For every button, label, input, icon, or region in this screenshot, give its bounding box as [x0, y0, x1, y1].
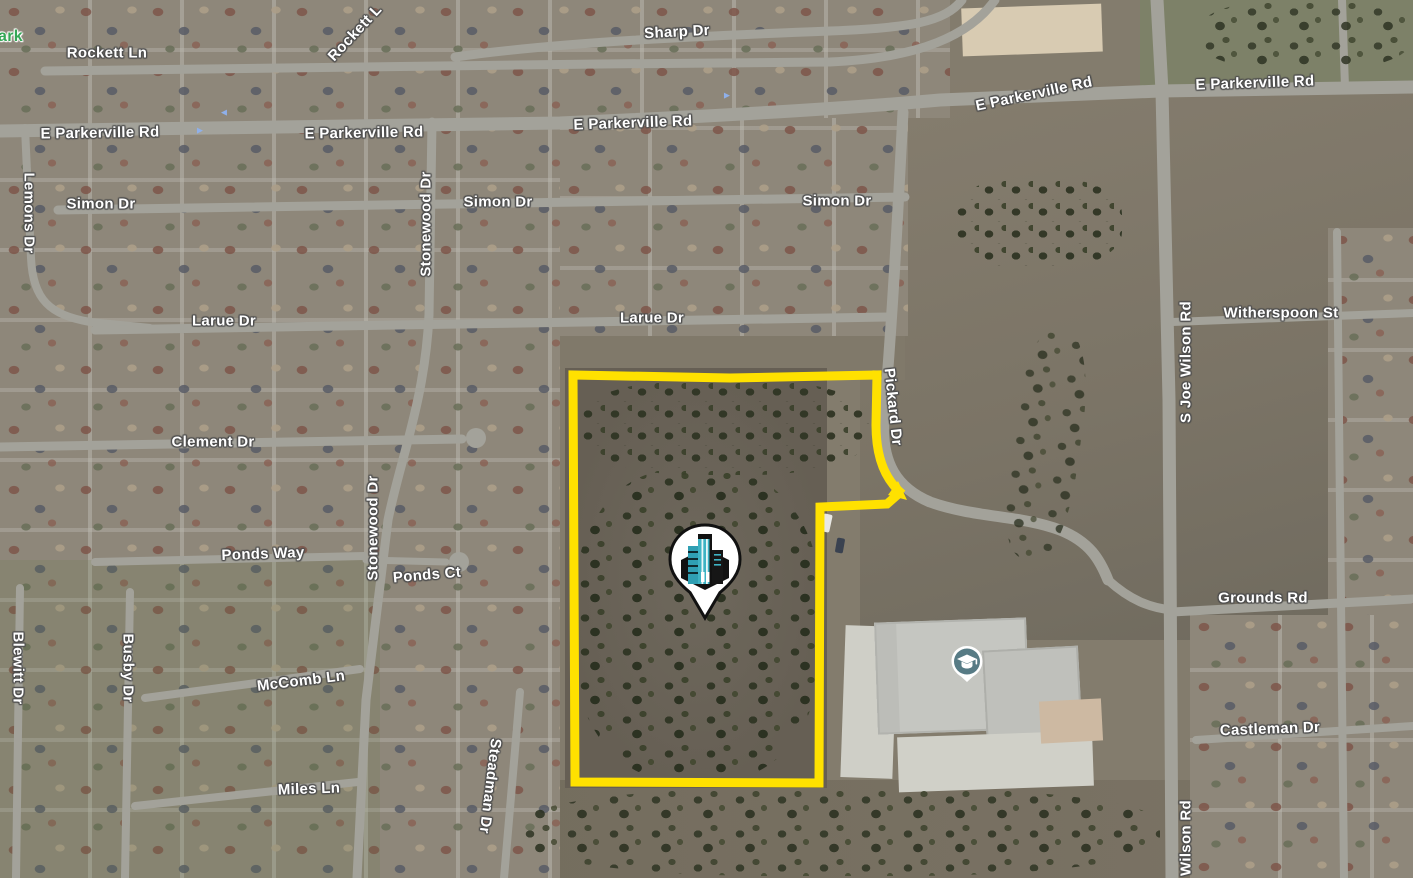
property-marker-pin[interactable] — [663, 522, 747, 622]
street-label-simon-dr-1: Simon Dr — [66, 196, 135, 213]
park-label: ark — [0, 28, 23, 46]
street-label-larue-dr-1: Larue Dr — [192, 313, 256, 330]
street-label-simon-dr-2: Simon Dr — [463, 194, 532, 211]
street-label-s-joe-wilson-rd: S Joe Wilson Rd — [1178, 301, 1195, 423]
street-label-witherspoon-st: Witherspoon St — [1224, 305, 1339, 322]
satellite-map[interactable]: ark Rockett Ln Rockett L Sharp Dr E Park… — [0, 0, 1413, 878]
street-label-simon-dr-3: Simon Dr — [802, 193, 871, 210]
street-label-castleman-dr: Castleman Dr — [1220, 719, 1321, 739]
street-label-grounds-rd: Grounds Rd — [1218, 590, 1308, 607]
street-label-wilson-rd: Wilson Rd — [1178, 800, 1195, 876]
traffic-arrow-left-icon: ◄ — [219, 108, 229, 119]
street-label-rockett-ln: Rockett Ln — [67, 45, 148, 62]
street-label-miles-ln: Miles Ln — [278, 779, 341, 798]
traffic-arrow-left-2-icon: ► — [722, 91, 732, 102]
street-label-e-parkerville-1: E Parkerville Rd — [40, 123, 159, 142]
street-label-blewitt-dr: Blewitt Dr — [10, 631, 27, 704]
street-label-busby-dr: Busby Dr — [120, 633, 137, 702]
street-label-stonewood-dr-2: Stonewood Dr — [365, 475, 382, 580]
street-label-ponds-way: Ponds Way — [221, 544, 305, 564]
street-label-stonewood-dr-1: Stonewood Dr — [418, 171, 435, 276]
school-poi-icon[interactable] — [948, 644, 986, 684]
street-label-larue-dr-2: Larue Dr — [620, 310, 684, 327]
street-label-clement-dr: Clement Dr — [171, 434, 254, 451]
street-label-lemons-dr: Lemons Dr — [21, 172, 38, 253]
traffic-arrow-right-icon: ► — [195, 126, 205, 137]
street-label-sharp-dr: Sharp Dr — [644, 22, 711, 42]
street-label-e-parkerville-2: E Parkerville Rd — [304, 123, 423, 142]
